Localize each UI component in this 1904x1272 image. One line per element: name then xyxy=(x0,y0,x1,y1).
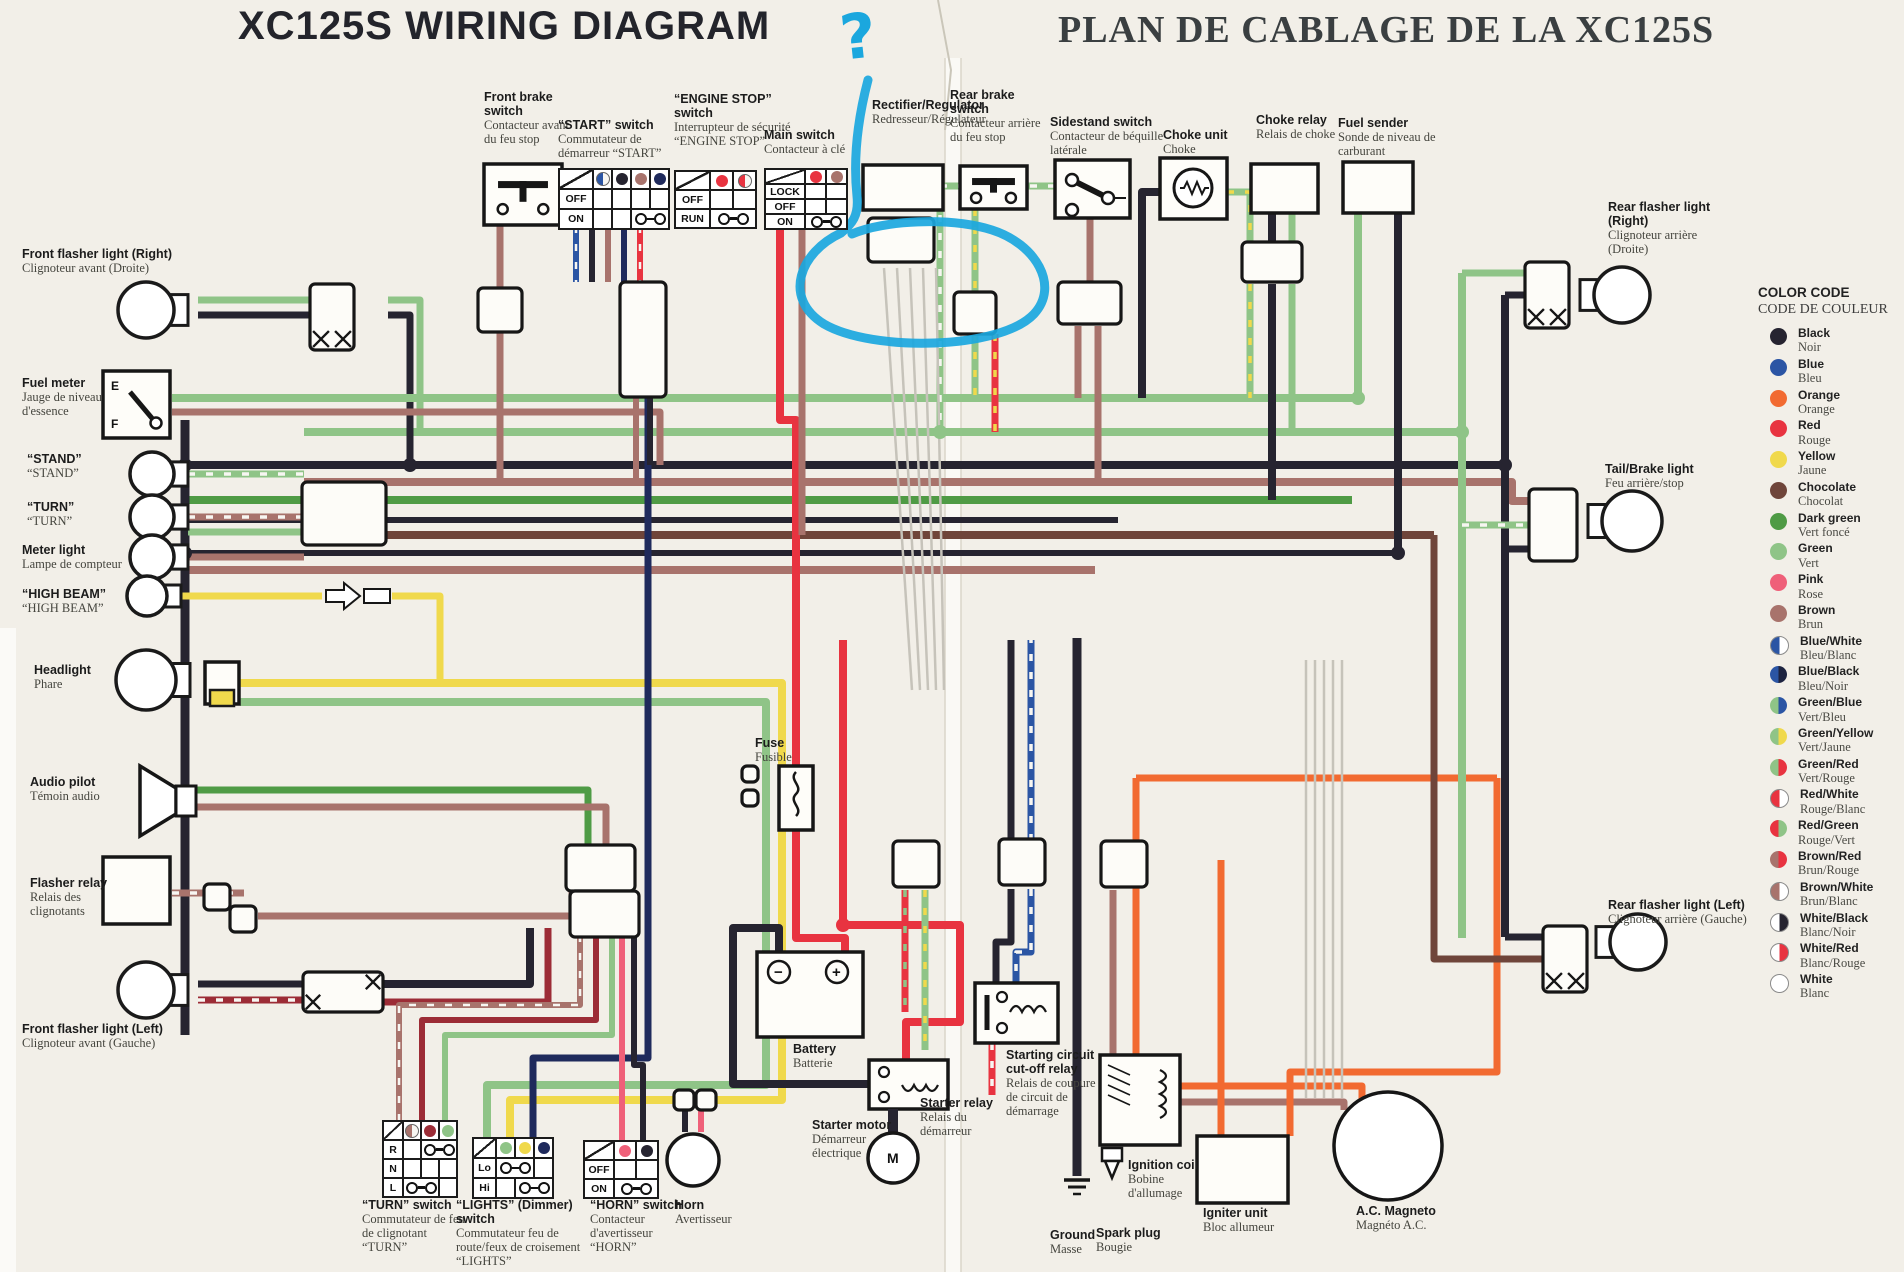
bulb-symbol xyxy=(1594,267,1650,323)
legend-entry: Brown/WhiteBrun/Blanc xyxy=(1758,880,1904,909)
igniter-unit-label: Igniter unitBloc allumeur xyxy=(1203,1206,1289,1235)
component-box xyxy=(779,766,813,830)
legend-entry: GreenVert xyxy=(1758,541,1904,570)
stand-lamp-label: “STAND”“STAND” xyxy=(27,452,117,481)
legend-entry-name: Black xyxy=(1798,326,1830,340)
legend-entry-name-french: Rouge xyxy=(1798,433,1831,447)
wire-color-dot xyxy=(500,1142,512,1154)
legend-entry-name: Dark green xyxy=(1798,511,1861,525)
legend-color-dot xyxy=(1770,974,1789,993)
engine-stop-switch-table: OFF RUN xyxy=(674,170,757,229)
fuel-sender-label: Fuel senderSonde de niveau de carburant xyxy=(1338,116,1450,159)
legend-entry-name-french: Orange xyxy=(1798,402,1840,416)
legend-entry-name: Orange xyxy=(1798,388,1840,402)
legend-entry: BrownBrun xyxy=(1758,603,1904,632)
legend-entry-name-french: Blanc/Rouge xyxy=(1800,956,1865,970)
rectifier-regulator-label: Rectifier/RegulatorRedresseur/Régulateur xyxy=(872,98,954,127)
legend-entry: ChocolateChocolat xyxy=(1758,480,1904,509)
wire-connector xyxy=(954,292,996,334)
wire-connector xyxy=(310,284,354,350)
wire-color-dot xyxy=(519,1142,531,1154)
legend-entry: Blue/WhiteBleu/Blanc xyxy=(1758,634,1904,663)
wire-color-dot xyxy=(810,171,822,183)
legend-entry: Brown/RedBrun/Rouge xyxy=(1758,849,1904,878)
meter-light-label: Meter lightLampe de compteur xyxy=(22,543,162,572)
component-box xyxy=(1251,164,1318,213)
wire-color-dot xyxy=(716,175,728,187)
wiring-diagram-page: XC125S WIRING DIAGRAM PLAN DE CABLAGE DE… xyxy=(0,0,1904,1272)
wire-connector xyxy=(566,845,635,891)
legend-entry-name: White/Red xyxy=(1800,941,1865,955)
lights-dimmer-switch-table: Lo Hi xyxy=(472,1137,554,1199)
component-box xyxy=(863,165,943,210)
wire-color-dot xyxy=(405,1124,419,1138)
wire-color-dot xyxy=(424,1125,436,1137)
legend-entry-name-french: Brun/Blanc xyxy=(1800,894,1873,908)
legend-color-dot xyxy=(1770,605,1787,622)
legend-entry-name-french: Vert foncé xyxy=(1798,525,1861,539)
wire-color-dot xyxy=(619,1145,631,1157)
legend-color-dot xyxy=(1770,666,1787,683)
wire-connector xyxy=(674,1090,694,1110)
legend-entry: Green/YellowVert/Jaune xyxy=(1758,726,1904,755)
legend-color-dot xyxy=(1770,820,1787,837)
high-beam-lamp-label: “HIGH BEAM”“HIGH BEAM” xyxy=(22,587,142,616)
legend-color-dot xyxy=(1770,636,1789,655)
rear-flasher-left-label: Rear flasher light (Left)Clignoteur arri… xyxy=(1608,898,1768,927)
legend-entry: RedRouge xyxy=(1758,418,1904,447)
legend-entry-name: Green xyxy=(1798,541,1833,555)
wire-color-dot xyxy=(654,173,666,185)
wire-connector xyxy=(999,839,1045,885)
legend-color-dot xyxy=(1770,513,1787,530)
legend-title-french: CODE DE COULEUR xyxy=(1758,302,1904,318)
legend-entry-name: Yellow xyxy=(1798,449,1835,463)
legend-color-dot xyxy=(1770,728,1787,745)
wire-connector xyxy=(742,766,758,782)
wire-connector xyxy=(1058,282,1121,324)
legend-entry-name: Brown/White xyxy=(1800,880,1873,894)
legend-entry: Green/RedVert/Rouge xyxy=(1758,757,1904,786)
legend-entry-name: White/Black xyxy=(1800,911,1868,925)
main-switch-table: LOCK OFF ON xyxy=(764,168,848,230)
legend-entry: Blue/BlackBleu/Noir xyxy=(1758,664,1904,693)
front-flasher-left-label: Front flasher light (Left)Clignoteur ava… xyxy=(22,1022,202,1051)
ignition-coil-label: Ignition coilBobine d'allumage xyxy=(1128,1158,1214,1201)
legend-entry-name-french: Rose xyxy=(1798,587,1823,601)
legend-entry-name-french: Blanc/Noir xyxy=(1800,925,1868,939)
bulb-symbol xyxy=(1602,491,1662,551)
legend-entry: BlackNoir xyxy=(1758,326,1904,355)
starting-cutoff-relay-label: Starting circuit cut-off relayRelais de … xyxy=(1006,1048,1100,1118)
legend-color-dot xyxy=(1770,482,1787,499)
legend-color-dot xyxy=(1770,420,1787,437)
front-flasher-right-label: Front flasher light (Right)Clignoteur av… xyxy=(22,247,194,276)
start-switch-label: “START” switchCommutateur de démarreur “… xyxy=(558,118,680,161)
legend-color-dot xyxy=(1770,913,1789,932)
page-title: XC125S WIRING DIAGRAM xyxy=(238,4,770,49)
legend-entry-name-french: Brun xyxy=(1798,617,1835,631)
wire-connector xyxy=(1242,242,1302,282)
wire-connector xyxy=(1101,841,1147,887)
legend-entry-name-french: Rouge/Blanc xyxy=(1800,802,1865,816)
rear-brake-switch-label: Rear brake switchContacteur arrière du f… xyxy=(950,88,1046,145)
legend-color-dot xyxy=(1770,543,1787,560)
audio-pilot-label: Audio pilotTémoin audio xyxy=(30,775,140,804)
legend-entry-name: Red xyxy=(1798,418,1831,432)
legend-entry-name-french: Noir xyxy=(1798,340,1830,354)
choke-unit-label: Choke unitChoke xyxy=(1163,128,1253,157)
flasher-relay-label: Flasher relayRelais des clignotants xyxy=(30,876,126,919)
legend-entry-name: Brown xyxy=(1798,603,1835,617)
legend-entry-name: Chocolate xyxy=(1798,480,1856,494)
legend-entry-name: Green/Red xyxy=(1798,757,1859,771)
rear-flasher-right-label: Rear flasher light (Right)Clignoteur arr… xyxy=(1608,200,1738,257)
wire-connector xyxy=(303,972,383,1012)
fuel-gauge-e-mark: E xyxy=(111,379,119,393)
headlight-label: HeadlightPhare xyxy=(34,663,124,692)
legend-entry-name-french: Jaune xyxy=(1798,463,1835,477)
wire-color-dot xyxy=(738,174,752,188)
bulb-symbol xyxy=(116,650,176,710)
legend-entry-name-french: Chocolat xyxy=(1798,494,1856,508)
legend-entry-name-french: Vert xyxy=(1798,556,1833,570)
horn-label: HornAvertisseur xyxy=(675,1198,765,1227)
legend-entry-name-french: Bleu/Noir xyxy=(1798,679,1859,693)
lights-switch-label: “LIGHTS” (Dimmer) switchCommutateur feu … xyxy=(456,1198,584,1268)
battery-label: BatteryBatterie xyxy=(793,1042,873,1071)
wire-connector xyxy=(302,482,386,545)
legend-entry-name-french: Bleu xyxy=(1798,371,1824,385)
legend-entry: White/RedBlanc/Rouge xyxy=(1758,941,1904,970)
handwritten-question-mark: ? xyxy=(836,0,879,75)
legend-color-dot xyxy=(1770,697,1787,714)
legend-entry-name: Blue/White xyxy=(1800,634,1862,648)
spark-plug-label: Spark plugBougie xyxy=(1096,1226,1162,1255)
legend-entry: BlueBleu xyxy=(1758,357,1904,386)
wire-color-dot xyxy=(442,1125,454,1137)
legend-color-dot xyxy=(1770,789,1789,808)
choke-relay-label: Choke relayRelais de choke xyxy=(1256,113,1336,142)
battery-minus-terminal: − xyxy=(774,964,783,981)
component-box xyxy=(1100,1055,1180,1145)
fuse-label: FuseFusible xyxy=(755,736,825,765)
wire-color-dot xyxy=(641,1145,653,1157)
turn-switch-table: R N L xyxy=(382,1120,458,1198)
legend-entry-name: Pink xyxy=(1798,572,1823,586)
legend-entry-name-french: Vert/Jaune xyxy=(1798,740,1873,754)
legend-entry: OrangeOrange xyxy=(1758,388,1904,417)
wire-color-dot xyxy=(635,173,647,185)
legend-entry-name-french: Vert/Rouge xyxy=(1798,771,1859,785)
legend-entry-name: Blue xyxy=(1798,357,1824,371)
turn-lamp-label: “TURN”“TURN” xyxy=(27,500,117,529)
legend-entry-name: White xyxy=(1800,972,1833,986)
legend-entry-name-french: Brun/Rouge xyxy=(1798,863,1861,877)
horn-switch-table: OFF ON xyxy=(583,1140,659,1199)
wire-connector xyxy=(1543,926,1587,992)
legend-color-dot xyxy=(1770,851,1787,868)
bulb-symbol xyxy=(130,452,174,496)
legend-entry: WhiteBlanc xyxy=(1758,972,1904,1001)
bulb-symbol xyxy=(118,962,174,1018)
wire-connector xyxy=(204,884,230,910)
wire-connector xyxy=(1525,262,1569,328)
legend-color-dot xyxy=(1770,574,1787,591)
legend-entry-name-french: Bleu/Blanc xyxy=(1800,648,1862,662)
legend-entry: PinkRose xyxy=(1758,572,1904,601)
legend-color-dot xyxy=(1770,451,1787,468)
wire-color-dot xyxy=(831,171,843,183)
legend-entry-name: Green/Blue xyxy=(1798,695,1862,709)
legend-color-dot xyxy=(1770,328,1787,345)
component-box xyxy=(1343,162,1413,213)
legend-entry: White/BlackBlanc/Noir xyxy=(1758,911,1904,940)
wire-color-dot xyxy=(596,172,610,186)
bulb-symbol xyxy=(130,495,174,539)
legend-entry-name-french: Rouge/Vert xyxy=(1798,833,1859,847)
wire-connector xyxy=(696,1090,716,1110)
wire-connector xyxy=(478,288,522,332)
wire-connector xyxy=(1529,489,1577,561)
legend-entry-name: Red/Green xyxy=(1798,818,1859,832)
fuel-gauge-f-mark: F xyxy=(111,417,118,431)
wire-connector xyxy=(742,790,758,806)
bulb-symbol xyxy=(118,282,174,338)
main-switch-label: Main switchContacteur à clé xyxy=(764,128,876,157)
legend-entry-name: Green/Yellow xyxy=(1798,726,1873,740)
wire-color-dot xyxy=(616,173,628,185)
wiring-svg xyxy=(0,0,1904,1272)
tail-brake-light-label: Tail/Brake lightFeu arrière/stop xyxy=(1605,462,1735,491)
legend-entry: YellowJaune xyxy=(1758,449,1904,478)
wire-connector xyxy=(620,282,666,397)
wire-color-dot xyxy=(538,1142,550,1154)
legend-color-dot xyxy=(1770,882,1789,901)
start-switch-table: OFF ON xyxy=(558,168,670,230)
legend-color-dot xyxy=(1770,759,1787,776)
legend-color-dot xyxy=(1770,390,1787,407)
fuel-meter-label: Fuel meterJauge de niveau d'essence xyxy=(22,376,142,419)
legend-entry-name: Brown/Red xyxy=(1798,849,1861,863)
legend-title: COLOR CODE xyxy=(1758,285,1904,300)
page-title-french: PLAN DE CABLAGE DE LA XC125S xyxy=(1058,8,1714,52)
legend-entry: Red/GreenRouge/Vert xyxy=(1758,818,1904,847)
legend-entry-name: Blue/Black xyxy=(1798,664,1859,678)
component-box xyxy=(757,952,863,1037)
wire-connector xyxy=(893,841,939,887)
starter-relay-label: Starter relayRelais du démarreur xyxy=(920,1096,998,1139)
starter-motor-label: Starter motorDémarreur électrique xyxy=(812,1118,892,1161)
battery-plus-terminal: + xyxy=(832,964,841,981)
ac-magneto-label: A.C. MagnetoMagnéto A.C. xyxy=(1356,1204,1456,1233)
legend-color-dot xyxy=(1770,943,1789,962)
legend-entry: Dark greenVert foncé xyxy=(1758,511,1904,540)
sidestand-switch-label: Sidestand switchContacteur de béquille l… xyxy=(1050,115,1176,158)
legend-entry-name: Red/White xyxy=(1800,787,1865,801)
legend-entry: Red/WhiteRouge/Blanc xyxy=(1758,787,1904,816)
color-code-legend: COLOR CODE CODE DE COULEUR BlackNoirBlue… xyxy=(1758,285,1904,1003)
legend-color-dot xyxy=(1770,359,1787,376)
legend-entry-name-french: Blanc xyxy=(1800,986,1833,1000)
wire-connector xyxy=(570,891,639,937)
starter-motor-m-mark: M xyxy=(887,1150,899,1166)
wire-connector xyxy=(230,906,256,932)
legend-entry-name-french: Vert/Bleu xyxy=(1798,710,1862,724)
legend-entry: Green/BlueVert/Bleu xyxy=(1758,695,1904,724)
